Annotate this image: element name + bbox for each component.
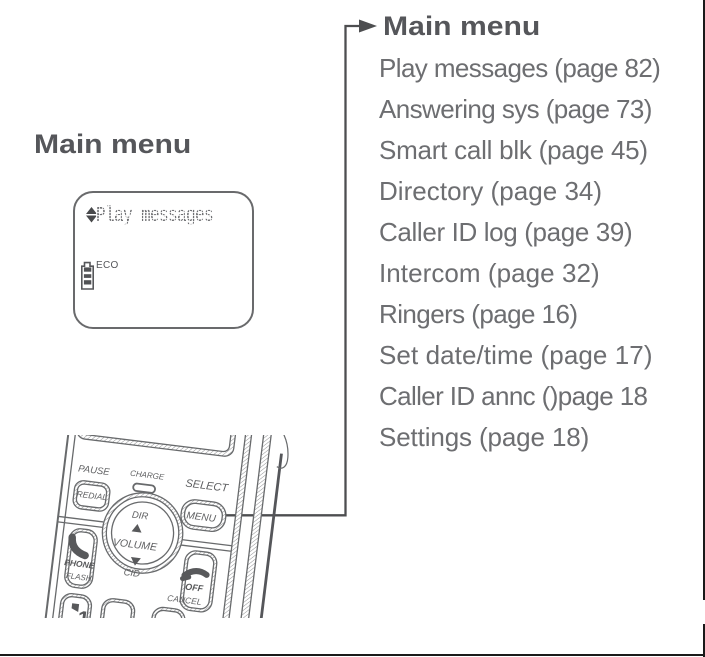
svg-text:SELECT: SELECT [185, 478, 230, 495]
svg-text:PAUSE: PAUSE [78, 463, 111, 478]
svg-text:CHARGE: CHARGE [130, 469, 166, 482]
svg-text:DIR: DIR [131, 510, 149, 523]
svg-text:CID: CID [123, 567, 141, 580]
svg-text:1: 1 [76, 607, 91, 618]
